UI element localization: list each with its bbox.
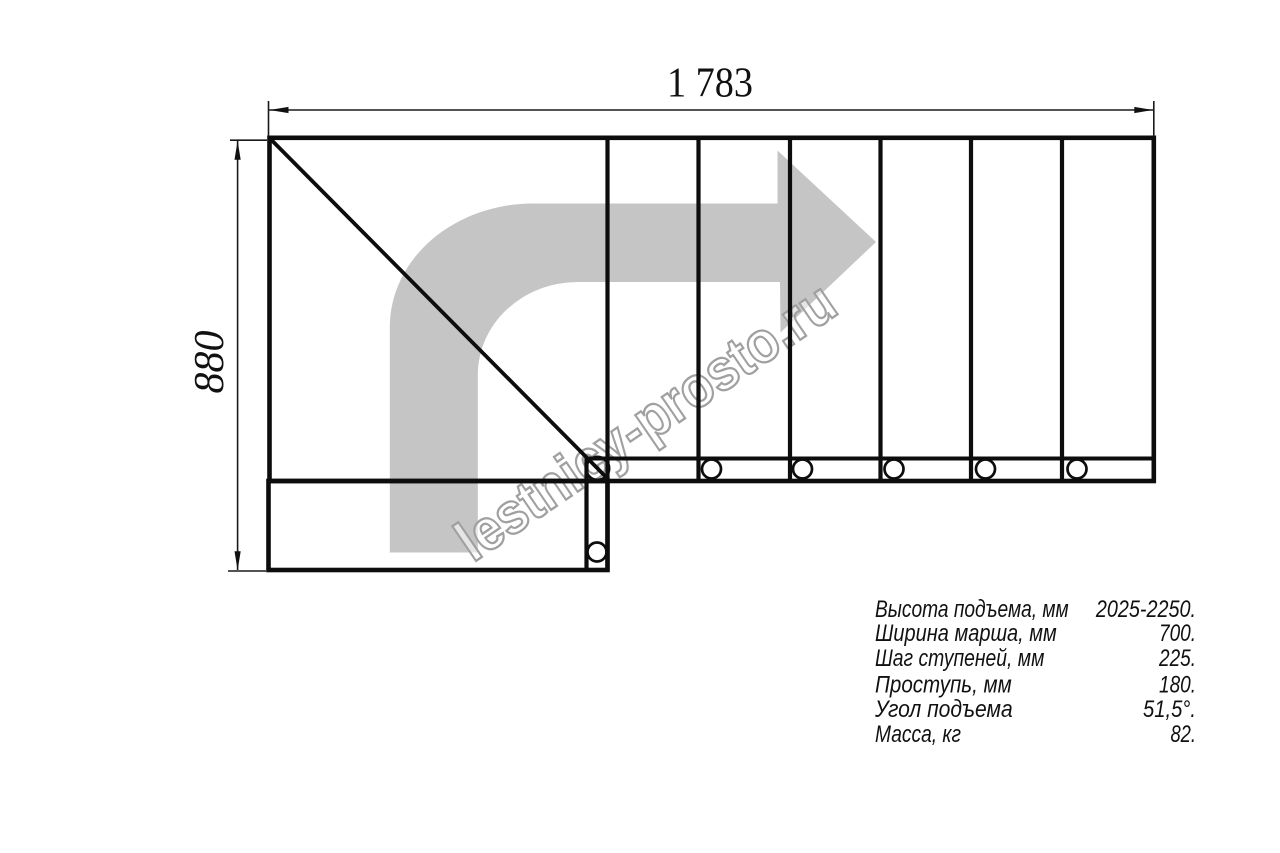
svg-text:51,5°.: 51,5°. — [1143, 695, 1196, 722]
svg-text:225.: 225. — [1158, 644, 1196, 672]
svg-text:880: 880 — [187, 331, 233, 394]
svg-text:700.: 700. — [1159, 619, 1196, 647]
svg-text:180.: 180. — [1159, 670, 1196, 698]
svg-text:Угол подъема: Угол подъема — [874, 694, 1013, 722]
svg-text:1 783: 1 783 — [667, 61, 753, 107]
svg-text:Ширина марша, мм: Ширина марша, мм — [875, 619, 1057, 646]
svg-text:Масса, кг: Масса, кг — [875, 720, 961, 748]
svg-text:82.: 82. — [1170, 719, 1196, 747]
svg-text:Шаг ступеней, мм: Шаг ступеней, мм — [875, 644, 1044, 672]
